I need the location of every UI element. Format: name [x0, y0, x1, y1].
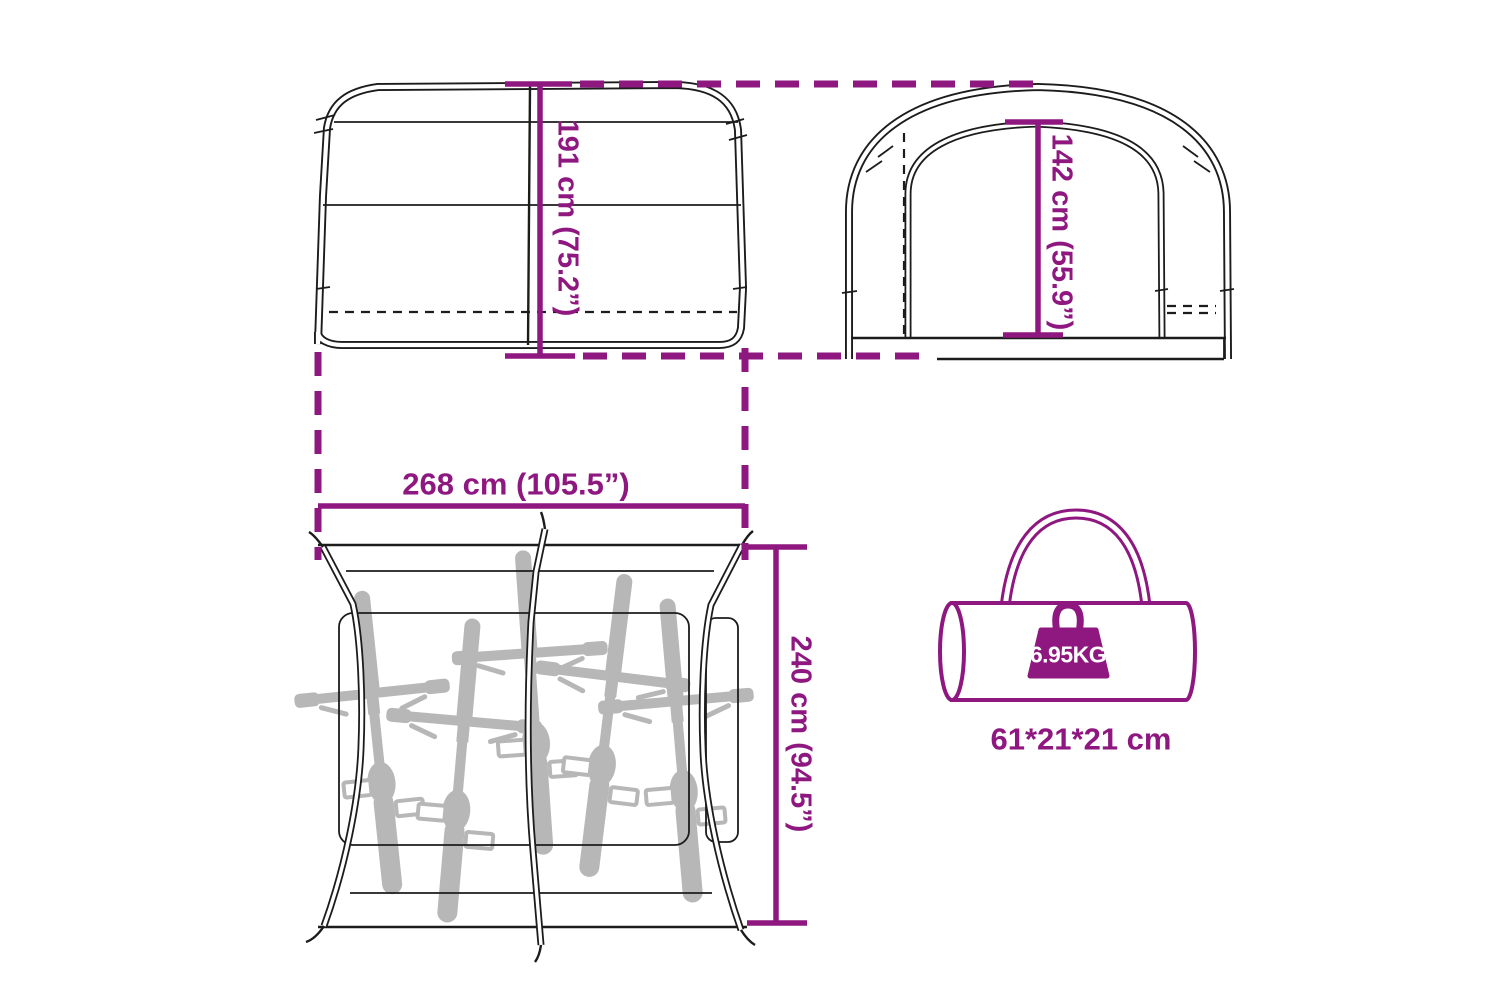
- diagram-canvas: [0, 0, 1500, 1000]
- product-dimension-diagram: 191 cm (75.2”) 142 cm (55.9”) 268 cm (10…: [0, 0, 1500, 1000]
- bag-size-label: 61*21*21 cm: [991, 724, 1172, 755]
- bag-end-cap: [940, 603, 964, 700]
- side-height-label: 191 cm (75.2”): [553, 120, 582, 317]
- top-depth-label: 240 cm (94.5”): [786, 636, 815, 833]
- top-width-label: 268 cm (105.5”): [402, 469, 629, 500]
- tent-door-arch: [908, 124, 1162, 338]
- side-view: [314, 85, 747, 345]
- bag-weight-label: 6.95KG: [1030, 644, 1106, 667]
- carry-bag-illustration: [940, 514, 1195, 700]
- front-inner-height-label: 142 cm (55.9”): [1047, 134, 1076, 331]
